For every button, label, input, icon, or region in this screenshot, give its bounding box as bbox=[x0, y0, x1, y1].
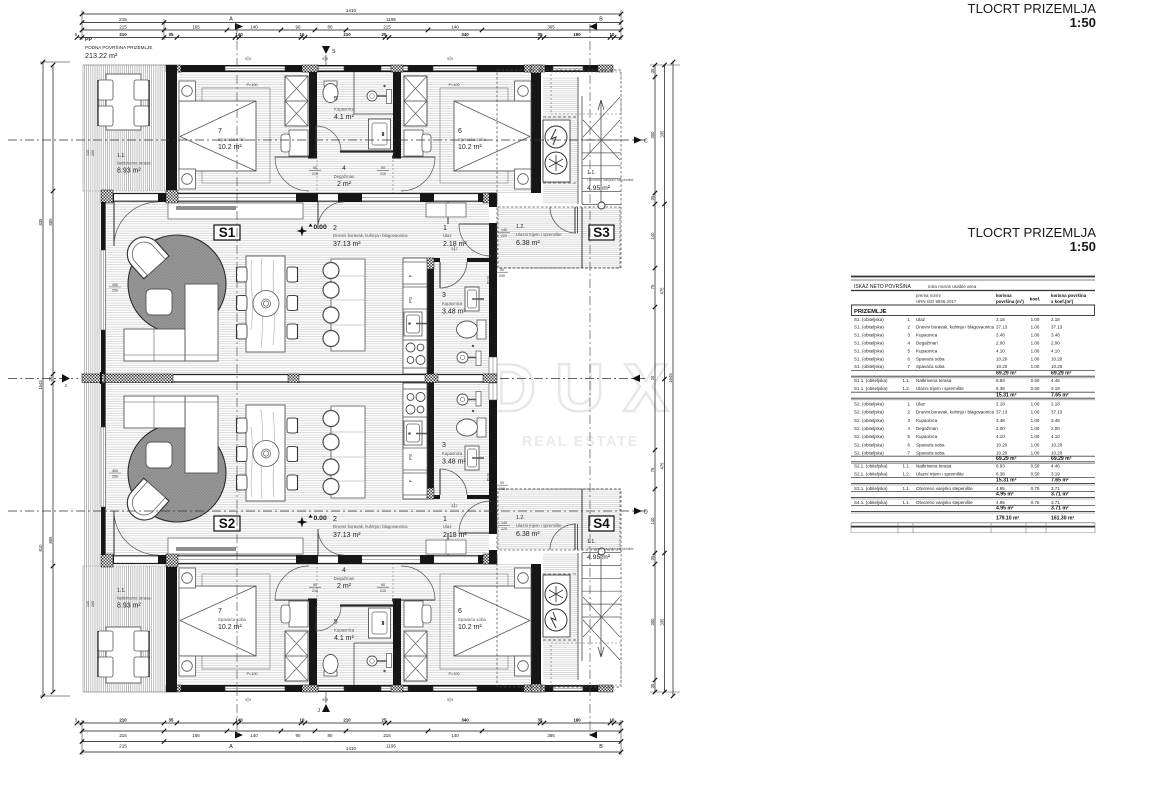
svg-text:F: F bbox=[408, 274, 413, 277]
svg-text:2.00: 2.00 bbox=[996, 426, 1005, 431]
svg-text:340: 340 bbox=[461, 32, 469, 37]
svg-text:S1.1. (obiteljska): S1.1. (obiteljska) bbox=[854, 386, 888, 391]
svg-text:69.29 m²: 69.29 m² bbox=[996, 456, 1017, 462]
svg-text:215: 215 bbox=[119, 25, 127, 30]
svg-text:Dnevni boravak, kuhinja i blag: Dnevni boravak, kuhinja i blagovaonica bbox=[916, 325, 995, 330]
svg-text:D: D bbox=[644, 510, 648, 516]
svg-text:10.20: 10.20 bbox=[996, 356, 1008, 361]
svg-text:1.1.: 1.1. bbox=[587, 170, 596, 176]
svg-text:3.48: 3.48 bbox=[1051, 418, 1060, 423]
svg-text:9: 9 bbox=[245, 57, 247, 61]
svg-text:Kupaonica: Kupaonica bbox=[334, 628, 355, 633]
svg-text:140: 140 bbox=[650, 517, 655, 525]
svg-text:S1. (obiteljska): S1. (obiteljska) bbox=[854, 317, 884, 322]
svg-text:Kupaonica: Kupaonica bbox=[442, 301, 463, 306]
svg-text:10: 10 bbox=[610, 32, 615, 37]
svg-text:Ulaz: Ulaz bbox=[916, 317, 926, 322]
svg-text:3.48: 3.48 bbox=[996, 418, 1005, 423]
svg-text:1.00: 1.00 bbox=[1031, 401, 1040, 406]
svg-text:140: 140 bbox=[501, 228, 507, 232]
svg-text:75: 75 bbox=[650, 467, 655, 472]
svg-text:90: 90 bbox=[296, 733, 301, 738]
svg-text:S2. (obiteljska): S2. (obiteljska) bbox=[854, 418, 884, 423]
svg-text:475: 475 bbox=[660, 462, 665, 470]
svg-text:intra muros usable area: intra muros usable area bbox=[928, 284, 977, 289]
svg-text:90: 90 bbox=[313, 166, 317, 170]
svg-text:TLOCRT PRIZEMLJA: TLOCRT PRIZEMLJA bbox=[968, 225, 1097, 240]
svg-text:1.00: 1.00 bbox=[1031, 418, 1040, 423]
svg-text:1.00: 1.00 bbox=[1031, 410, 1040, 415]
svg-text:3.19: 3.19 bbox=[1051, 386, 1060, 391]
svg-text:25: 25 bbox=[382, 32, 387, 37]
svg-text:Ulaz: Ulaz bbox=[443, 233, 452, 238]
svg-text:Otvoreno vanjsko stepenište: Otvoreno vanjsko stepenište bbox=[916, 486, 973, 491]
svg-text:A: A bbox=[229, 17, 233, 23]
svg-text:4.1 m²: 4.1 m² bbox=[334, 114, 355, 121]
svg-text:3.48 m²: 3.48 m² bbox=[442, 309, 466, 316]
svg-text:S2: S2 bbox=[219, 516, 236, 531]
svg-text:1.00: 1.00 bbox=[1031, 317, 1040, 322]
svg-text:0.50: 0.50 bbox=[1031, 463, 1040, 468]
svg-text:1645: 1645 bbox=[668, 373, 673, 383]
svg-text:215: 215 bbox=[119, 744, 127, 749]
svg-text:1645: 1645 bbox=[38, 380, 43, 390]
svg-text:35: 35 bbox=[538, 718, 543, 723]
svg-text:7.65 m²: 7.65 m² bbox=[1051, 392, 1069, 398]
svg-text:4.95 m²: 4.95 m² bbox=[996, 492, 1014, 498]
svg-text:90: 90 bbox=[381, 583, 385, 587]
svg-text:213.22 m²: 213.22 m² bbox=[85, 51, 118, 60]
svg-text:805: 805 bbox=[48, 536, 53, 544]
svg-text:2.18: 2.18 bbox=[1051, 317, 1060, 322]
svg-text:161.30 m²: 161.30 m² bbox=[1051, 515, 1075, 521]
svg-text:S2. (obiteljska): S2. (obiteljska) bbox=[854, 451, 884, 456]
svg-text:Ulazni trijem i spremište: Ulazni trijem i spremište bbox=[516, 232, 562, 237]
svg-text:S: S bbox=[332, 49, 336, 55]
svg-text:10.20: 10.20 bbox=[1051, 364, 1063, 369]
svg-text:300: 300 bbox=[650, 131, 655, 139]
svg-text:80: 80 bbox=[328, 25, 333, 30]
svg-text:8: 8 bbox=[452, 247, 454, 251]
svg-text:REAL ESTATE: REAL ESTATE bbox=[522, 434, 639, 450]
svg-text:165: 165 bbox=[192, 25, 200, 30]
svg-text:1.00: 1.00 bbox=[1031, 356, 1040, 361]
svg-text:215: 215 bbox=[119, 733, 127, 738]
svg-text:7: 7 bbox=[218, 128, 222, 135]
svg-text:365: 365 bbox=[547, 25, 555, 30]
svg-text:10.20: 10.20 bbox=[996, 442, 1008, 447]
svg-text:50: 50 bbox=[500, 481, 504, 485]
svg-text:F: F bbox=[408, 479, 413, 482]
svg-text:365: 365 bbox=[547, 733, 555, 738]
svg-text:3.48: 3.48 bbox=[1051, 333, 1060, 338]
svg-text:1.00: 1.00 bbox=[1031, 442, 1040, 447]
svg-text:140: 140 bbox=[250, 733, 258, 738]
svg-text:37.13: 37.13 bbox=[1051, 325, 1063, 330]
svg-text:4.95: 4.95 bbox=[996, 500, 1005, 505]
svg-text:37.13 m²: 37.13 m² bbox=[333, 532, 361, 539]
svg-text:korisna: korisna bbox=[996, 293, 1012, 298]
svg-text:4.46: 4.46 bbox=[1051, 378, 1060, 383]
svg-text:PS: PS bbox=[408, 297, 413, 303]
svg-text:3.48 m²: 3.48 m² bbox=[442, 459, 466, 466]
svg-text:Natkrivena terasa: Natkrivena terasa bbox=[117, 596, 151, 601]
svg-text:80: 80 bbox=[328, 733, 333, 738]
svg-text:1195: 1195 bbox=[386, 17, 396, 22]
svg-text:ISKAZ NETO POVRŠINA: ISKAZ NETO POVRŠINA bbox=[854, 283, 912, 290]
svg-text:Natkrivena terasa: Natkrivena terasa bbox=[916, 463, 952, 468]
svg-text:35: 35 bbox=[650, 555, 655, 560]
svg-text:Ulaz: Ulaz bbox=[916, 401, 926, 406]
svg-text:10.2 m²: 10.2 m² bbox=[218, 624, 242, 631]
svg-text:6: 6 bbox=[458, 128, 462, 135]
svg-text:1.00: 1.00 bbox=[1031, 341, 1040, 346]
svg-text:S1. (obiteljska): S1. (obiteljska) bbox=[854, 341, 884, 346]
svg-text:4.95: 4.95 bbox=[996, 486, 1005, 491]
svg-text:210: 210 bbox=[312, 589, 318, 593]
svg-text:200: 200 bbox=[499, 274, 505, 278]
svg-text:3: 3 bbox=[442, 292, 446, 299]
svg-text:4.10: 4.10 bbox=[996, 348, 1005, 353]
svg-text:Spavaća soba: Spavaća soba bbox=[458, 137, 486, 142]
svg-text:140: 140 bbox=[86, 150, 90, 156]
svg-text:7.65 m²: 7.65 m² bbox=[1051, 478, 1069, 484]
svg-text:1.00: 1.00 bbox=[1031, 434, 1040, 439]
svg-text:2: 2 bbox=[333, 516, 337, 523]
svg-text:10: 10 bbox=[300, 32, 305, 37]
svg-text:1.1.: 1.1. bbox=[902, 486, 910, 491]
svg-text:S2. (obiteljska): S2. (obiteljska) bbox=[854, 401, 884, 406]
svg-text:179.10 m²: 179.10 m² bbox=[996, 515, 1020, 521]
svg-text:Kupaonica: Kupaonica bbox=[916, 348, 938, 353]
svg-text:9: 9 bbox=[451, 698, 453, 702]
svg-text:7: 7 bbox=[218, 608, 222, 615]
svg-text:Kupaonica: Kupaonica bbox=[916, 434, 938, 439]
svg-text:6.38 m²: 6.38 m² bbox=[516, 531, 540, 538]
svg-text:1.1.: 1.1. bbox=[902, 500, 910, 505]
svg-text:9: 9 bbox=[322, 698, 324, 702]
svg-text:TLOCRT PRIZEMLJA: TLOCRT PRIZEMLJA bbox=[968, 1, 1097, 16]
svg-text:10: 10 bbox=[610, 718, 615, 723]
svg-text:Kupaonica: Kupaonica bbox=[916, 418, 938, 423]
svg-text:P=100: P=100 bbox=[448, 672, 459, 676]
svg-text:1195: 1195 bbox=[386, 744, 396, 749]
svg-text:69.29 m²: 69.29 m² bbox=[1051, 370, 1072, 376]
svg-text:10.20: 10.20 bbox=[1051, 356, 1063, 361]
svg-text:8.93: 8.93 bbox=[996, 378, 1005, 383]
svg-text:10.2 m²: 10.2 m² bbox=[458, 624, 482, 631]
svg-text:210: 210 bbox=[343, 32, 351, 37]
svg-text:220: 220 bbox=[501, 234, 507, 238]
svg-text:PS: PS bbox=[408, 454, 413, 460]
svg-text:0.00: 0.00 bbox=[314, 515, 327, 522]
svg-text:9: 9 bbox=[447, 57, 449, 61]
svg-text:Spavaća soba: Spavaća soba bbox=[916, 451, 945, 456]
svg-text:6.38: 6.38 bbox=[996, 386, 1005, 391]
svg-text:Spavaća soba: Spavaća soba bbox=[458, 617, 486, 622]
svg-text:140: 140 bbox=[86, 601, 90, 607]
svg-text:površina (m²): površina (m²) bbox=[996, 299, 1024, 304]
svg-text:9: 9 bbox=[249, 698, 251, 702]
svg-text:Dnevni boravak, kuhinja i blag: Dnevni boravak, kuhinja i blagovaonica bbox=[333, 524, 408, 529]
svg-text:1.2.: 1.2. bbox=[516, 515, 525, 521]
svg-text:260: 260 bbox=[91, 150, 95, 156]
svg-text:9: 9 bbox=[322, 57, 324, 61]
svg-text:2.18: 2.18 bbox=[1051, 401, 1060, 406]
svg-text:2.18: 2.18 bbox=[996, 401, 1005, 406]
svg-text:75: 75 bbox=[650, 284, 655, 289]
svg-text:3.71: 3.71 bbox=[1051, 486, 1060, 491]
svg-text:P=100: P=100 bbox=[246, 83, 257, 87]
svg-text:S3.1. (obiteljska): S3.1. (obiteljska) bbox=[854, 486, 888, 491]
svg-text:10: 10 bbox=[300, 718, 305, 723]
svg-text:Degažman: Degažman bbox=[916, 426, 938, 431]
svg-text:P=100: P=100 bbox=[448, 83, 459, 87]
svg-text:S1.1. (obiteljska): S1.1. (obiteljska) bbox=[854, 378, 888, 383]
svg-text:P=20: P=20 bbox=[487, 473, 491, 482]
svg-text:215: 215 bbox=[383, 25, 391, 30]
svg-text:C: C bbox=[644, 139, 648, 145]
svg-text:Otvoreno vanjsko stepenište: Otvoreno vanjsko stepenište bbox=[587, 547, 634, 551]
svg-text:10.20: 10.20 bbox=[1051, 442, 1063, 447]
svg-text:25: 25 bbox=[382, 718, 387, 723]
svg-text:HRN ISO 9836:2017: HRN ISO 9836:2017 bbox=[916, 299, 957, 304]
svg-text:1.1.: 1.1. bbox=[902, 463, 910, 468]
svg-text:Dnevni boravak, kuhinja i blag: Dnevni boravak, kuhinja i blagovaonica bbox=[333, 233, 408, 238]
svg-text:x koef.(m²): x koef.(m²) bbox=[1051, 299, 1074, 304]
svg-text:5: 5 bbox=[334, 619, 338, 626]
svg-text:250: 250 bbox=[112, 289, 118, 293]
svg-text:0.75: 0.75 bbox=[1031, 500, 1040, 505]
svg-text:1:50: 1:50 bbox=[1070, 15, 1096, 30]
svg-text:koef.: koef. bbox=[1030, 297, 1040, 302]
svg-text:S4.1. (obiteljska): S4.1. (obiteljska) bbox=[854, 500, 888, 505]
svg-text:1: 1 bbox=[443, 225, 447, 232]
svg-text:9: 9 bbox=[249, 57, 251, 61]
svg-text:Kupaonica: Kupaonica bbox=[442, 451, 463, 456]
svg-text:215: 215 bbox=[383, 733, 391, 738]
svg-text:20: 20 bbox=[650, 375, 655, 380]
svg-text:140: 140 bbox=[650, 232, 655, 240]
svg-text:Natkrivena terasa: Natkrivena terasa bbox=[117, 161, 151, 166]
svg-text:335: 335 bbox=[660, 130, 665, 138]
svg-text:1.00: 1.00 bbox=[1031, 333, 1040, 338]
svg-text:8.93: 8.93 bbox=[996, 463, 1005, 468]
svg-text:140: 140 bbox=[501, 521, 507, 525]
svg-text:1.2.: 1.2. bbox=[516, 224, 525, 230]
svg-text:210: 210 bbox=[380, 172, 386, 176]
svg-text:B: B bbox=[599, 744, 603, 750]
svg-text:210: 210 bbox=[119, 718, 127, 723]
svg-text:2 m²: 2 m² bbox=[337, 583, 352, 590]
svg-text:0.00: 0.00 bbox=[314, 224, 327, 231]
svg-text:P=100: P=100 bbox=[246, 672, 257, 676]
svg-text:215: 215 bbox=[119, 17, 127, 22]
svg-text:2.00: 2.00 bbox=[1051, 426, 1060, 431]
svg-text:4: 4 bbox=[342, 165, 346, 172]
svg-text:37.13: 37.13 bbox=[996, 410, 1008, 415]
svg-text:69.29 m²: 69.29 m² bbox=[1051, 456, 1072, 462]
svg-text:165: 165 bbox=[192, 733, 200, 738]
svg-text:S1. (obiteljska): S1. (obiteljska) bbox=[854, 333, 884, 338]
svg-text:35: 35 bbox=[650, 195, 655, 200]
svg-text:S2. (obiteljska): S2. (obiteljska) bbox=[854, 410, 884, 415]
svg-text:190: 190 bbox=[573, 32, 581, 37]
svg-text:Spavaća soba: Spavaća soba bbox=[916, 356, 945, 361]
svg-text:8.93 m²: 8.93 m² bbox=[117, 168, 141, 175]
svg-text:4.95 m²: 4.95 m² bbox=[587, 185, 611, 192]
svg-text:2.18: 2.18 bbox=[996, 317, 1005, 322]
svg-text:Spavaća soba: Spavaća soba bbox=[218, 617, 246, 622]
svg-text:5: 5 bbox=[334, 96, 338, 103]
svg-text:1: 1 bbox=[443, 516, 447, 523]
svg-text:90: 90 bbox=[381, 166, 385, 170]
svg-text:Ulazni trijem i spremište: Ulazni trijem i spremište bbox=[916, 472, 964, 477]
svg-text:1.2.: 1.2. bbox=[902, 386, 910, 391]
svg-text:PRIZEMLJE: PRIZEMLJE bbox=[854, 309, 887, 315]
svg-text:2: 2 bbox=[333, 225, 337, 232]
svg-text:3.71 m²: 3.71 m² bbox=[1051, 492, 1069, 498]
svg-text:Kupaonica: Kupaonica bbox=[916, 333, 938, 338]
svg-text:35: 35 bbox=[169, 32, 174, 37]
svg-text:S1: S1 bbox=[219, 225, 236, 240]
svg-text:37.13: 37.13 bbox=[1051, 410, 1063, 415]
svg-text:140: 140 bbox=[235, 718, 243, 723]
svg-text:200: 200 bbox=[499, 487, 505, 491]
svg-text:35: 35 bbox=[538, 32, 543, 37]
svg-text:4: 4 bbox=[342, 567, 346, 574]
svg-text:1.1.: 1.1. bbox=[587, 539, 596, 545]
svg-text:210: 210 bbox=[343, 718, 351, 723]
svg-text:PP: PP bbox=[85, 37, 92, 43]
svg-text:0.50: 0.50 bbox=[1031, 378, 1040, 383]
svg-text:prema normi: prema normi bbox=[916, 293, 941, 298]
svg-text:S1. (obiteljska): S1. (obiteljska) bbox=[854, 356, 884, 361]
svg-text:4.46: 4.46 bbox=[1051, 463, 1060, 468]
svg-text:140: 140 bbox=[451, 25, 459, 30]
svg-text:8.93 m²: 8.93 m² bbox=[117, 603, 141, 610]
svg-text:S1. (obiteljska): S1. (obiteljska) bbox=[854, 325, 884, 330]
svg-text:S3: S3 bbox=[593, 225, 610, 240]
svg-text:15.31 m²: 15.31 m² bbox=[996, 392, 1017, 398]
svg-text:69.29 m²: 69.29 m² bbox=[996, 370, 1017, 376]
svg-text:2.00: 2.00 bbox=[996, 341, 1005, 346]
svg-text:Ulazni trijem i spremište: Ulazni trijem i spremište bbox=[516, 523, 562, 528]
svg-text:1:50: 1:50 bbox=[1070, 239, 1096, 254]
svg-text:140: 140 bbox=[235, 32, 243, 37]
svg-text:35: 35 bbox=[650, 68, 655, 73]
svg-text:1.00: 1.00 bbox=[1031, 364, 1040, 369]
svg-text:210: 210 bbox=[380, 589, 386, 593]
svg-text:1.00: 1.00 bbox=[1031, 426, 1040, 431]
svg-text:9: 9 bbox=[451, 57, 453, 61]
svg-text:9: 9 bbox=[245, 698, 247, 702]
svg-text:9: 9 bbox=[447, 698, 449, 702]
svg-text:1.1.: 1.1. bbox=[117, 588, 126, 594]
svg-text:Ulaz: Ulaz bbox=[443, 524, 452, 529]
svg-text:6.38: 6.38 bbox=[996, 472, 1005, 477]
svg-text:2.00: 2.00 bbox=[1051, 341, 1060, 346]
svg-text:6: 6 bbox=[458, 608, 462, 615]
svg-text:90: 90 bbox=[296, 25, 301, 30]
svg-text:10.2 m²: 10.2 m² bbox=[218, 144, 242, 151]
svg-text:140: 140 bbox=[451, 733, 459, 738]
svg-text:Degažman: Degažman bbox=[916, 341, 938, 346]
svg-text:0.50: 0.50 bbox=[1031, 386, 1040, 391]
svg-text:210: 210 bbox=[312, 172, 318, 176]
svg-text:37.13: 37.13 bbox=[996, 325, 1008, 330]
svg-text:Spavaća soba: Spavaća soba bbox=[218, 137, 246, 142]
svg-text:2.18 m²: 2.18 m² bbox=[443, 532, 467, 539]
svg-text:250: 250 bbox=[112, 475, 118, 479]
svg-text:2 m²: 2 m² bbox=[337, 181, 352, 188]
svg-text:805: 805 bbox=[48, 218, 53, 226]
svg-text:4.95 m²: 4.95 m² bbox=[587, 554, 611, 561]
svg-text:3.19: 3.19 bbox=[1051, 472, 1060, 477]
svg-text:4.10: 4.10 bbox=[1051, 348, 1060, 353]
svg-text:140: 140 bbox=[250, 25, 258, 30]
svg-text:35: 35 bbox=[650, 683, 655, 688]
svg-text:260: 260 bbox=[91, 601, 95, 607]
svg-text:1410: 1410 bbox=[346, 746, 357, 751]
svg-text:PODNA POVRŠINA PRIZEMLJE: PODNA POVRŠINA PRIZEMLJE bbox=[85, 44, 152, 50]
svg-text:0.75: 0.75 bbox=[1031, 486, 1040, 491]
svg-text:35: 35 bbox=[169, 718, 174, 723]
svg-text:1.00: 1.00 bbox=[1031, 451, 1040, 456]
svg-text:340: 340 bbox=[461, 718, 469, 723]
svg-text:4.1 m²: 4.1 m² bbox=[334, 635, 355, 642]
svg-text:Degažman: Degažman bbox=[334, 576, 355, 581]
svg-text:S2.1. (obiteljska): S2.1. (obiteljska) bbox=[854, 463, 888, 468]
svg-text:50: 50 bbox=[500, 268, 504, 272]
svg-text:2: 2 bbox=[456, 504, 458, 508]
svg-text:1.1.: 1.1. bbox=[902, 378, 910, 383]
svg-text:4.10: 4.10 bbox=[1051, 434, 1060, 439]
svg-text:S4: S4 bbox=[593, 516, 610, 531]
svg-text:S2. (obiteljska): S2. (obiteljska) bbox=[854, 442, 884, 447]
svg-text:810: 810 bbox=[38, 544, 43, 552]
svg-text:1.1.: 1.1. bbox=[117, 153, 126, 159]
svg-text:8: 8 bbox=[452, 504, 454, 508]
svg-text:335: 335 bbox=[660, 618, 665, 626]
svg-text:450: 450 bbox=[112, 469, 118, 473]
svg-text:B: B bbox=[599, 17, 603, 23]
svg-text:210: 210 bbox=[119, 32, 127, 37]
svg-text:Degažman: Degažman bbox=[334, 174, 355, 179]
svg-text:10.2 m²: 10.2 m² bbox=[458, 144, 482, 151]
svg-text:A: A bbox=[229, 744, 233, 750]
svg-text:3.71 m²: 3.71 m² bbox=[1051, 506, 1069, 512]
svg-text:Spavaća soba: Spavaća soba bbox=[916, 442, 945, 447]
svg-text:300: 300 bbox=[650, 618, 655, 626]
svg-text:6.38 m²: 6.38 m² bbox=[516, 240, 540, 247]
svg-text:Spavaća soba: Spavaća soba bbox=[916, 364, 945, 369]
svg-text:korisna površina: korisna površina bbox=[1051, 293, 1087, 298]
svg-text:1.00: 1.00 bbox=[1031, 325, 1040, 330]
svg-text:1.2.: 1.2. bbox=[902, 472, 910, 477]
svg-text:Otvoreno vanjsko stepenište: Otvoreno vanjsko stepenište bbox=[916, 500, 973, 505]
svg-text:835: 835 bbox=[38, 218, 43, 226]
svg-text:3: 3 bbox=[442, 442, 446, 449]
svg-text:2: 2 bbox=[456, 247, 458, 251]
svg-text:Ulazni trijem i spremište: Ulazni trijem i spremište bbox=[916, 386, 964, 391]
svg-text:J: J bbox=[317, 708, 320, 714]
svg-text:220: 220 bbox=[501, 527, 507, 531]
svg-text:15.31 m²: 15.31 m² bbox=[996, 478, 1017, 484]
svg-text:90: 90 bbox=[313, 583, 317, 587]
svg-text:Otvoreno vanjsko stepenište: Otvoreno vanjsko stepenište bbox=[587, 178, 634, 182]
svg-text:S1. (obiteljska): S1. (obiteljska) bbox=[854, 364, 884, 369]
